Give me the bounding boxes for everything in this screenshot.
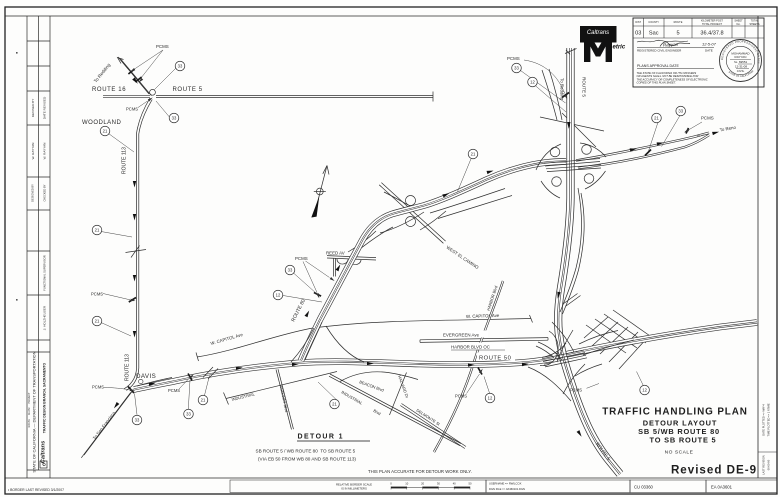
svg-text:W. RAYYAN: W. RAYYAN	[43, 143, 47, 160]
svg-text:33: 33	[135, 418, 140, 423]
svg-text:PCMS: PCMS	[455, 394, 467, 399]
svg-text:ROUTE 113: ROUTE 113	[122, 147, 128, 174]
svg-text:Sac: Sac	[649, 31, 659, 37]
svg-text:FUNCTIONAL SUPERVISOR: FUNCTIONAL SUPERVISOR	[43, 255, 47, 290]
svg-text:40: 40	[453, 482, 456, 486]
svg-text:00-00-00: 00-00-00	[767, 459, 771, 470]
svg-text:33: 33	[288, 268, 293, 273]
svg-text:12: 12	[276, 293, 281, 298]
svg-text:PCMS: PCMS	[126, 107, 138, 112]
svg-text:ROUTE 5: ROUTE 5	[582, 77, 587, 97]
svg-text:STATE OF CALIFORNIA — DEPARTME: STATE OF CALIFORNIA — DEPARTMENT OF TRAN…	[32, 351, 37, 472]
svg-text:12: 12	[488, 396, 493, 401]
svg-text:5: 5	[676, 31, 679, 37]
svg-text:J. HOLZHEUSER: J. HOLZHEUSER	[43, 305, 47, 330]
svg-text:Caltrans: Caltrans	[41, 441, 47, 463]
svg-text:ROUTE 16: ROUTE 16	[92, 87, 126, 93]
svg-text:ROUTE 113: ROUTE 113	[125, 354, 131, 381]
svg-text:21: 21	[95, 319, 100, 324]
svg-text:IS IN MILLIMETERS: IS IN MILLIMETERS	[341, 487, 367, 491]
svg-text:COUNTY: COUNTY	[648, 21, 659, 24]
svg-text:Rayyan: Rayyan	[663, 42, 679, 48]
svg-text:12-5-07: 12-5-07	[702, 42, 717, 47]
svg-text:Caltrans: Caltrans	[587, 30, 609, 36]
svg-text:TIME PLOTTED => 1 ATIME: TIME PLOTTED => 1 ATIME	[767, 403, 771, 436]
svg-text:THIS PLAN ACCURATE FOR DETOUR: THIS PLAN ACCURATE FOR DETOUR WORK ONLY.	[368, 469, 472, 474]
svg-text:DGN FILE => 0A360101.DGN: DGN FILE => 0A360101.DGN	[489, 487, 525, 491]
svg-text:CHECKED BY: CHECKED BY	[43, 184, 47, 201]
svg-text:10: 10	[405, 482, 408, 486]
svg-text:33: 33	[678, 109, 683, 114]
svg-text:30: 30	[437, 482, 440, 486]
svg-text:REVISED BY: REVISED BY	[31, 99, 35, 118]
svg-text:DATE PLOTTED => MAY-4: DATE PLOTTED => MAY-4	[762, 404, 766, 436]
svg-text:21: 21	[332, 402, 337, 407]
svg-text:PCMS: PCMS	[168, 388, 180, 393]
svg-text:DETOUR 1: DETOUR 1	[298, 434, 344, 441]
svg-text:50: 50	[469, 482, 472, 486]
svg-text:PCMS: PCMS	[295, 256, 308, 261]
svg-text:21: 21	[201, 398, 206, 403]
svg-text:PCMS: PCMS	[570, 388, 582, 393]
svg-text:69551: 69551	[739, 60, 748, 64]
svg-text:21: 21	[471, 152, 476, 157]
svg-text:33: 33	[514, 66, 519, 71]
svg-text:12: 12	[530, 80, 535, 85]
svg-text:etric: etric	[613, 45, 626, 51]
svg-text:ROUTE: ROUTE	[674, 21, 683, 24]
svg-text:COPIES OF THIS PLAN SHEET.: COPIES OF THIS PLAN SHEET.	[637, 81, 677, 85]
svg-text:DATE REVISED: DATE REVISED	[43, 96, 47, 119]
svg-text:CIVIL: CIVIL	[737, 69, 745, 73]
svg-text:PCMS: PCMS	[701, 116, 714, 121]
svg-text:DAVIS: DAVIS	[136, 373, 156, 380]
svg-text:PCMS: PCMS	[91, 292, 103, 297]
svg-text:36.4/37.8: 36.4/37.8	[700, 31, 723, 37]
svg-text:To Redding: To Redding	[560, 78, 565, 101]
svg-text:20: 20	[421, 482, 424, 486]
svg-text:12: 12	[642, 388, 647, 393]
svg-text:USERNAME => RWILCOX: USERNAME => RWILCOX	[489, 482, 522, 486]
svg-text:REED AV: REED AV	[326, 251, 345, 256]
svg-text:21: 21	[95, 228, 100, 233]
svg-text:• BORDER LAST REVISED 3/1/2007: • BORDER LAST REVISED 3/1/2007	[8, 488, 64, 492]
svg-text:RAYYAN: RAYYAN	[735, 55, 747, 59]
svg-text:21: 21	[103, 129, 108, 134]
svg-text:12-31-08: 12-31-08	[735, 65, 747, 69]
svg-text:SB ROUTE 5 / WB ROUTE 80 TO S: SB ROUTE 5 / WB ROUTE 80 TO SB ROUTE 5	[256, 449, 356, 454]
svg-text:33: 33	[178, 64, 183, 69]
svg-text:REGISTERED CIVIL ENGINEER: REGISTERED CIVIL ENGINEER	[637, 49, 682, 53]
svg-text:DIST: DIST	[635, 21, 641, 24]
svg-text:(VIA EB 50 FROM WB 80 AND SB R: (VIA EB 50 FROM WB 80 AND SB ROUTE 113)	[258, 457, 356, 462]
svg-text:33: 33	[186, 412, 191, 417]
svg-text:PCMS: PCMS	[507, 56, 520, 61]
svg-text:TOTAL PROJECT: TOTAL PROJECT	[702, 23, 723, 26]
svg-text:TO SB ROUTE 5: TO SB ROUTE 5	[650, 436, 717, 445]
svg-text:PCMS: PCMS	[92, 385, 104, 390]
svg-text:PLANS APPROVAL DATE: PLANS APPROVAL DATE	[637, 64, 679, 68]
svg-text:WOODLAND: WOODLAND	[82, 120, 122, 126]
svg-text:LAST REVISION: LAST REVISION	[762, 455, 766, 475]
svg-text:TRAFFIC HANDLING PLAN: TRAFFIC HANDLING PLAN	[602, 407, 748, 418]
svg-text:PCMS: PCMS	[156, 44, 169, 49]
svg-text:03: 03	[635, 31, 641, 37]
svg-text:EVERGREEN Ave: EVERGREEN Ave	[443, 333, 480, 338]
svg-text:NO SCALE: NO SCALE	[665, 450, 694, 456]
svg-text:CU 03360: CU 03360	[634, 485, 654, 490]
svg-text:21: 21	[654, 116, 659, 121]
svg-text:EA 0A3601: EA 0A3601	[711, 485, 733, 490]
svg-text:No.: No.	[737, 23, 741, 26]
svg-text:33: 33	[172, 116, 177, 121]
svg-text:ROUTE 5: ROUTE 5	[173, 87, 203, 93]
svg-text:DATE: DATE	[705, 49, 713, 53]
svg-text:TRAFFIC DESIGN BRANCH, SACRAME: TRAFFIC DESIGN BRANCH, SACRAMENTO	[43, 363, 47, 434]
svg-text:HARBOR BLVD OC: HARBOR BLVD OC	[451, 345, 490, 350]
svg-text:Revised DE-9: Revised DE-9	[671, 464, 757, 477]
svg-text:ROUTE 50: ROUTE 50	[479, 356, 511, 362]
svg-text:DESIGNED BY: DESIGNED BY	[31, 184, 35, 202]
svg-text:SHEETS: SHEETS	[749, 23, 759, 26]
svg-text:W. RAYYAN: W. RAYYAN	[31, 143, 35, 160]
